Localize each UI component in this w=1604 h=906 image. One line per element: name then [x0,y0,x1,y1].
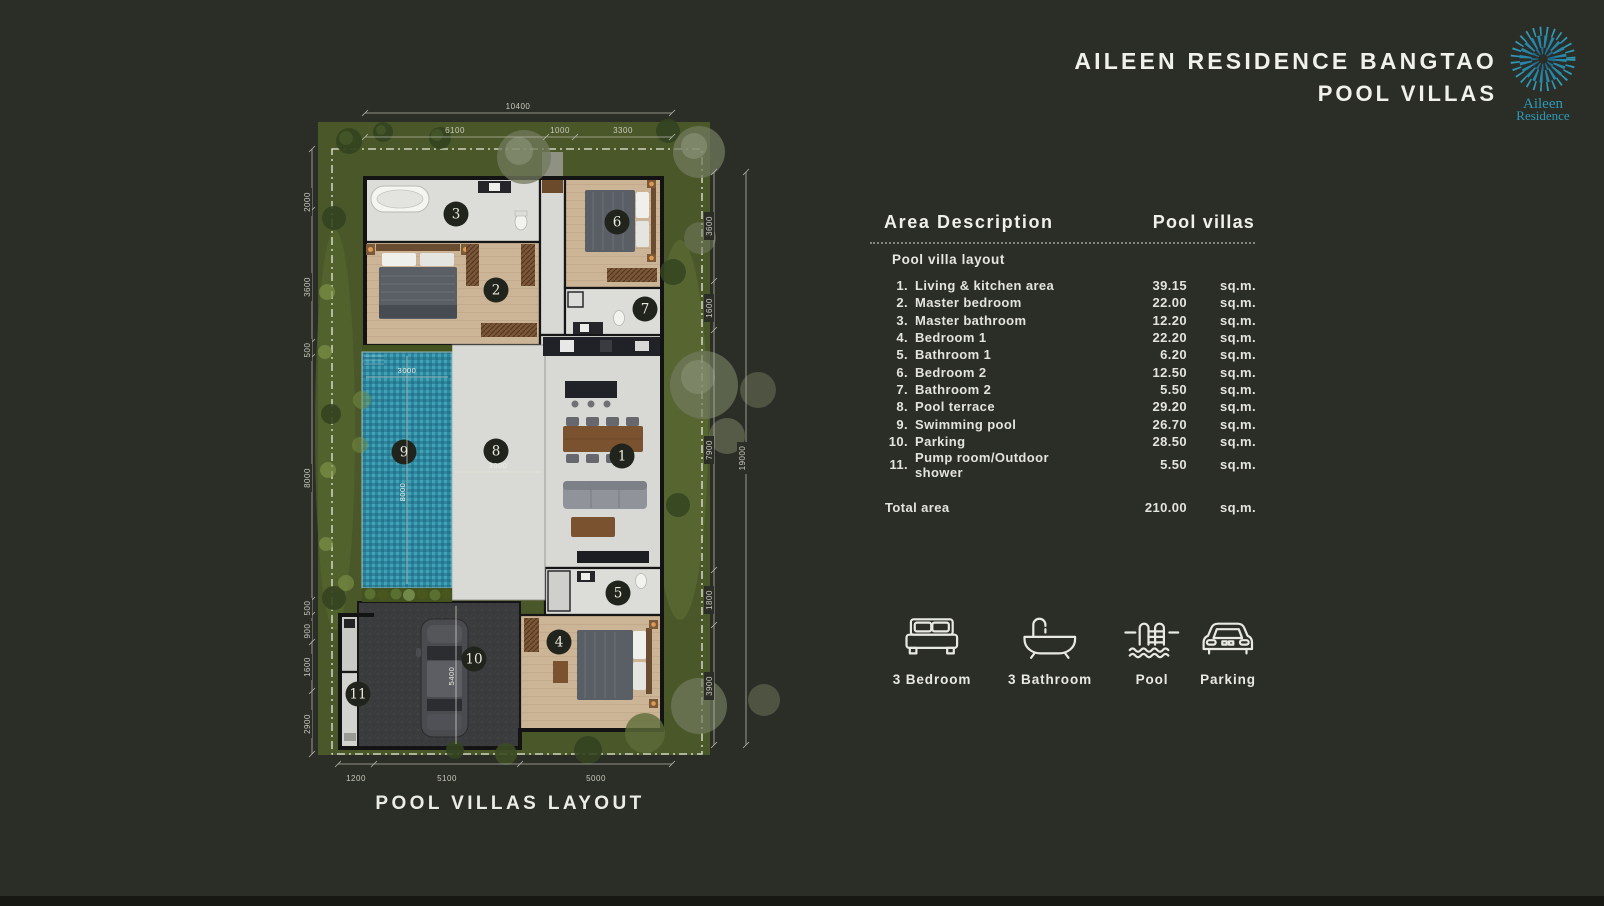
dim-label: 3300 [613,126,633,135]
page-title: AILEEN RESIDENCE BANGTAO POOL VILLAS [990,48,1497,107]
dim-label: 1200 [346,774,366,783]
toilet [515,214,527,230]
dim-label: 1600 [303,657,312,677]
dim-label: 5400 [447,667,456,686]
kitchen-island [565,381,617,398]
table-section-label: Pool villa layout [892,252,1005,267]
room-number: 4 [555,635,564,651]
dim-label: 2900 [303,714,312,734]
dim-label: 500 [303,343,312,358]
total-label: Total area [878,500,1095,515]
dim-label: 5100 [437,774,457,783]
feature-label: 3 Bedroom [872,672,992,687]
car [416,619,473,737]
pool-villas-column-title: Pool villas [1153,212,1255,233]
dim-label: 6100 [445,126,465,135]
shower [548,571,570,611]
table-row: 2.Master bedroom22.00sq.m. [870,294,1255,311]
project-title: AILEEN RESIDENCE BANGTAO [990,48,1497,75]
wardrobe [466,244,479,286]
wardrobe [481,323,537,337]
feature-bedrooms: 3 Bedroom [872,616,992,687]
project-subtitle: POOL VILLAS [990,81,1497,107]
feature-parking: Parking [1168,616,1288,687]
room-number: 11 [349,687,366,703]
toilet [614,311,625,326]
hallway [540,178,565,335]
table-row: 7.Bathroom 25.50sq.m. [870,381,1255,398]
pool-terrace [452,345,545,600]
table-row: 3.Master bathroom12.20sq.m. [870,312,1255,329]
bed-icon [901,616,963,660]
area-table: 1.Living & kitchen area39.15sq.m. 2.Mast… [870,277,1255,467]
dim-label: 7900 [705,440,714,460]
table-row: 11.Pump room/Outdoor shower5.50sq.m. [870,450,1255,467]
hedge-top [362,345,452,352]
coffee-table [571,517,615,537]
table-row: 9.Swimming pool26.70sq.m. [870,415,1255,432]
dim-label: 900 [303,624,312,639]
toilet [636,574,647,589]
dim-label: 8000 [398,483,407,502]
doormat [542,180,563,193]
dim-label: 500 [303,601,312,616]
dim-label: 3000 [398,366,417,375]
dim-label: 2000 [303,192,312,212]
room-number: 2 [492,283,501,299]
dim-label: 19000 [738,446,747,471]
plan-caption: POOL VILLAS LAYOUT [290,793,730,815]
table-row: 8.Pool terrace29.20sq.m. [870,398,1255,415]
headboard [376,244,460,251]
dim-label: 1000 [550,126,570,135]
floor-plan: 1 2 3 4 5 6 7 8 9 10 11 [290,95,800,830]
dim-label: 3000 [489,461,508,470]
starburst-logo-icon [1508,24,1578,94]
table-row: 5.Bathroom 16.20sq.m. [870,346,1255,363]
dim-label: 5000 [586,774,606,783]
feature-label: Parking [1168,672,1288,687]
table-row: 4.Bedroom 122.20sq.m. [870,329,1255,346]
bench [553,661,568,683]
brand-logo: Aileen Residence [1502,24,1584,122]
dim-label: 3600 [303,277,312,297]
table-row: 10.Parking28.50sq.m. [870,433,1255,450]
wardrobe [524,618,539,652]
wardrobe [521,244,535,286]
room-number: 3 [452,207,461,223]
area-table-header: Area Description Pool villas [870,212,1255,244]
logo-text-line2: Residence [1502,110,1584,122]
page: AILEEN RESIDENCE BANGTAO POOL VILLAS Ail… [0,0,1604,906]
wardrobe [607,268,657,282]
dim-label: 1800 [705,590,714,610]
total-value: 210.00 [1095,500,1187,515]
room-number: 7 [641,302,650,318]
dim-label: 1600 [705,298,714,318]
tv-console [577,551,649,563]
room-number: 10 [465,652,482,668]
area-description-title: Area Description [870,212,1054,233]
car-icon [1197,616,1259,660]
room-number: 8 [492,444,501,460]
room-number: 1 [618,449,627,465]
dim-label: 8000 [303,468,312,488]
room-number: 5 [614,586,623,602]
dim-label: 3600 [705,216,714,236]
table-row: 1.Living & kitchen area39.15sq.m. [870,277,1255,294]
dim-label: 10400 [506,102,531,111]
total-area-row: Total area210.00sq.m. [870,499,1255,516]
bathtub-icon [1019,616,1081,660]
table-row: 6.Bedroom 212.50sq.m. [870,363,1255,380]
bottom-bar [0,896,1604,906]
room-number: 6 [613,215,622,231]
dim-label: 3900 [705,676,714,696]
